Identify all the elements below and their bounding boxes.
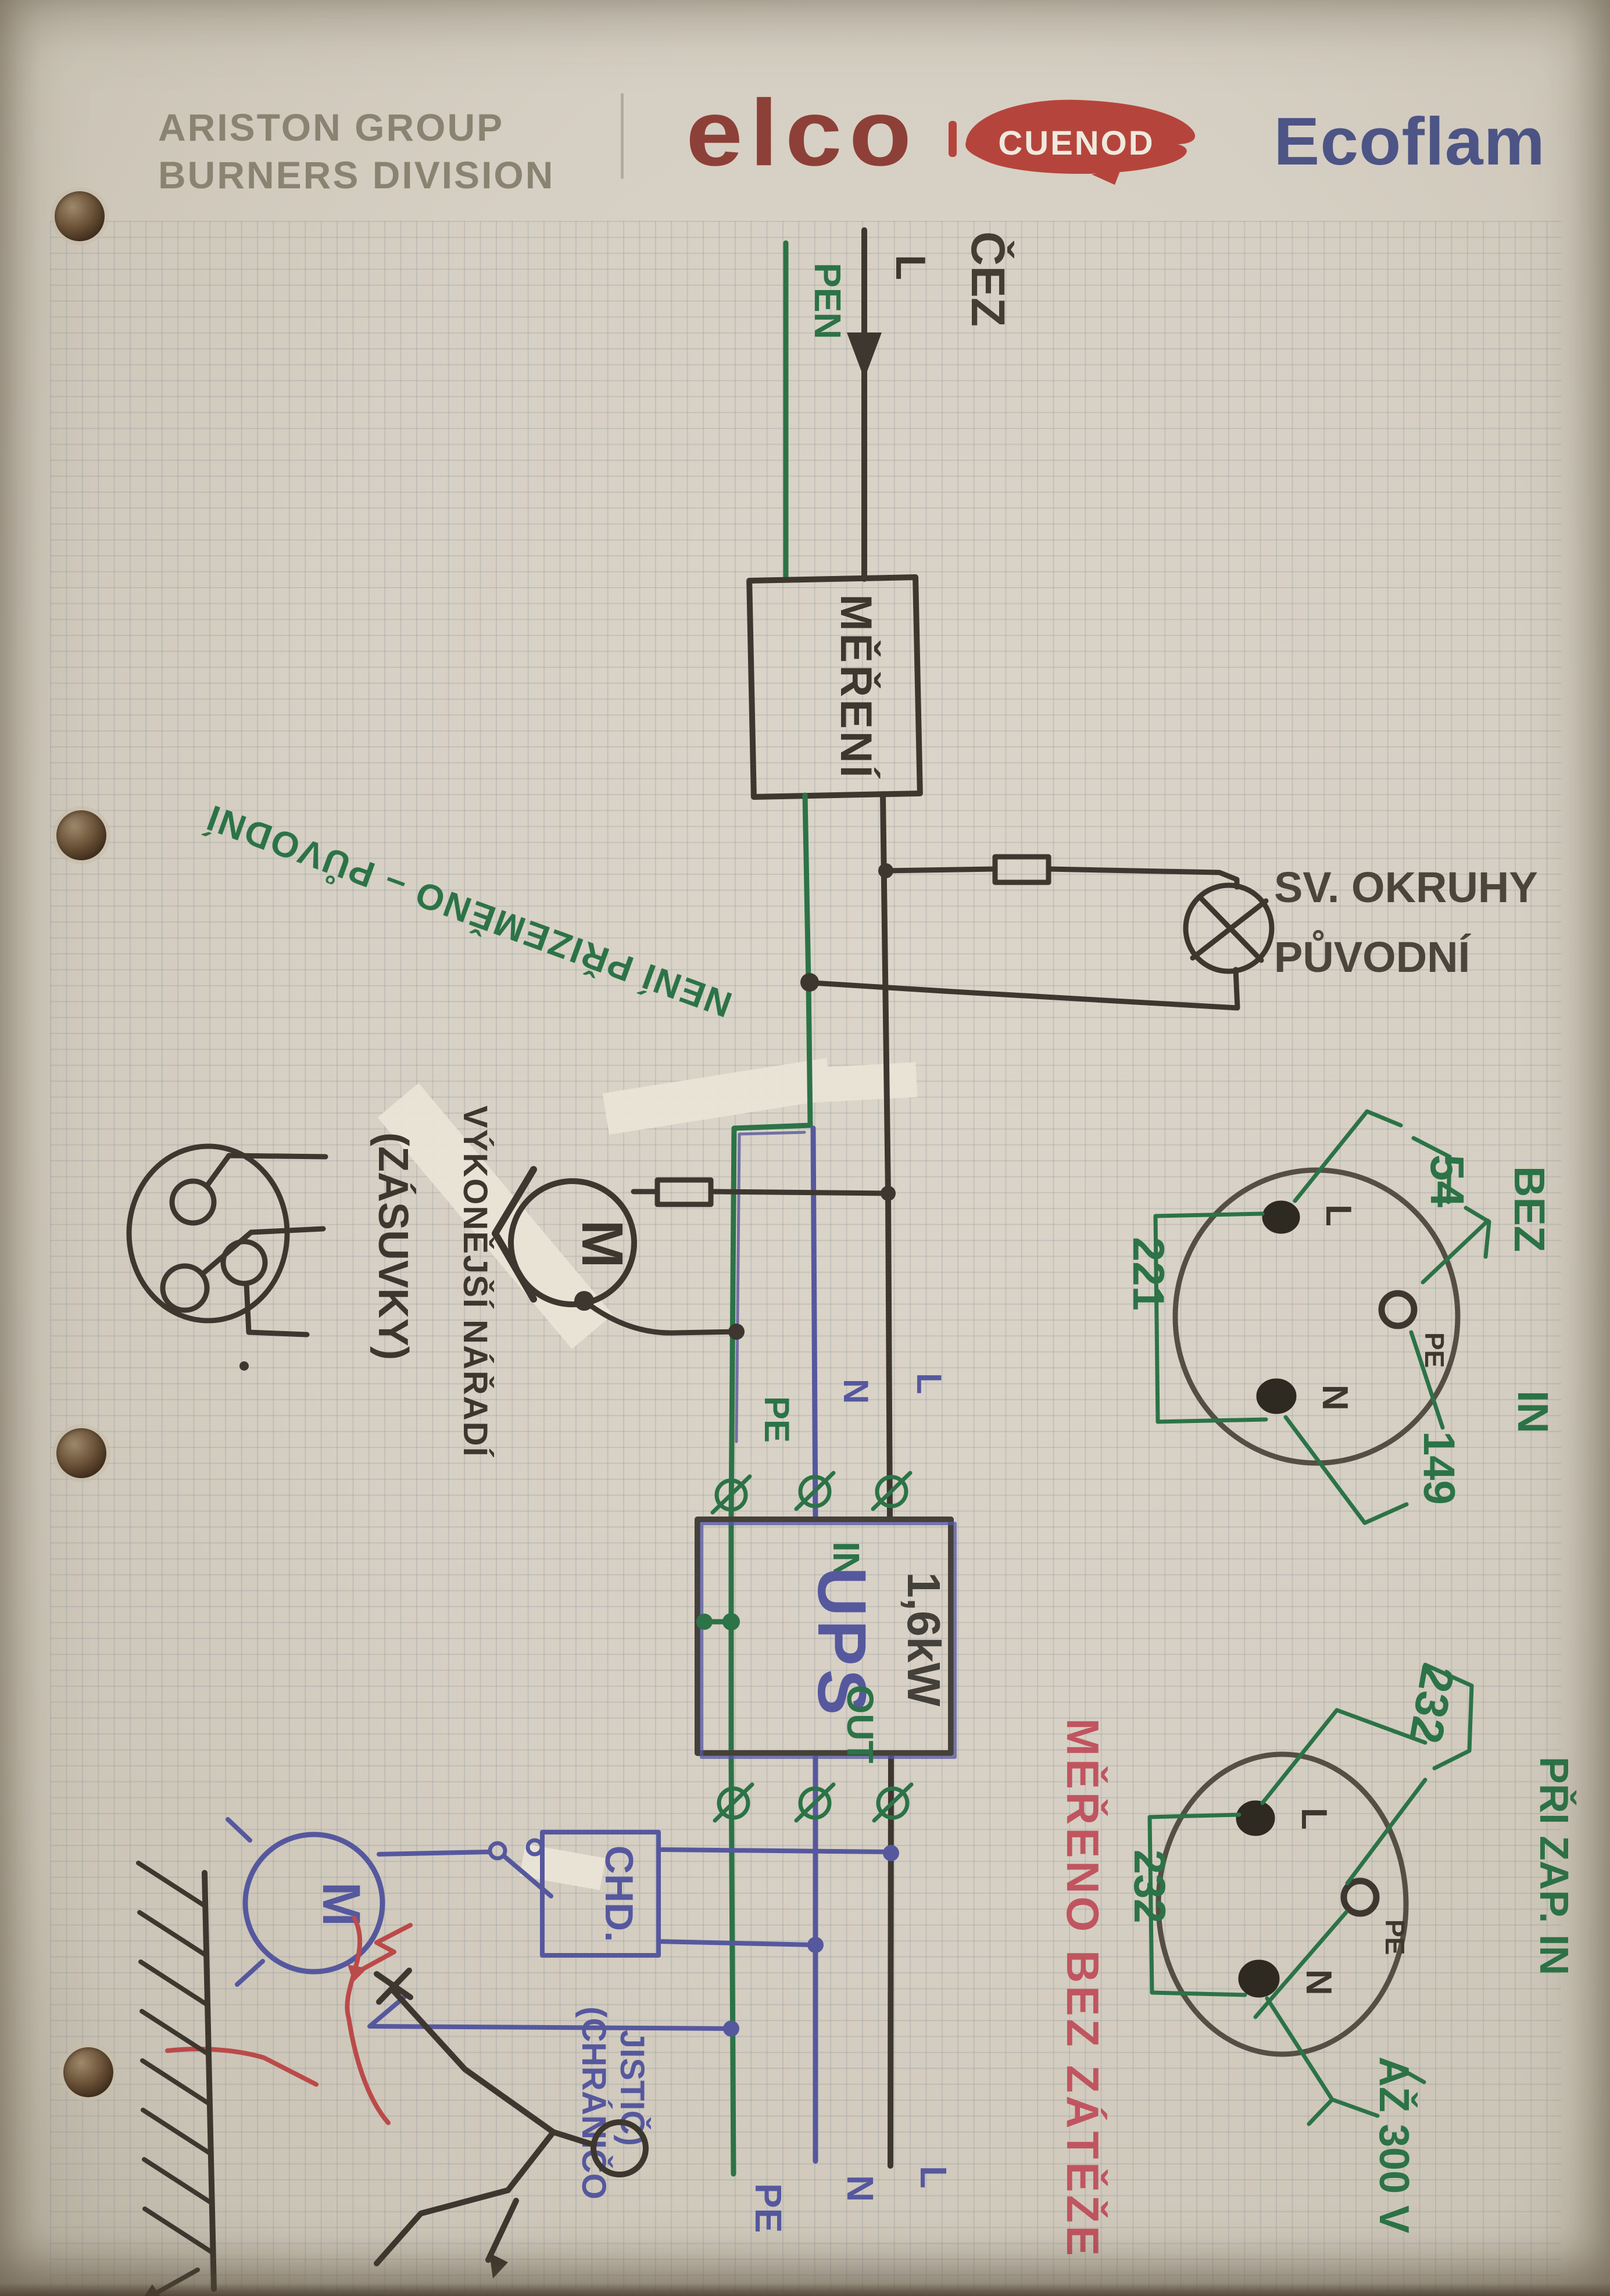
reading-note: PŘI ZAP. IN <box>1532 1757 1577 1975</box>
pen-label: PEN <box>807 263 849 339</box>
plug-wire <box>246 1283 307 1335</box>
ground-and-person <box>138 1863 646 2296</box>
notebook-page-photo: ARISTON GROUP BURNERS DIVISION elco CUEN… <box>0 0 1610 2296</box>
pin-label-pe: PE <box>1419 1332 1450 1368</box>
plug-pin <box>223 1242 265 1283</box>
pe-bond-dot <box>696 1614 713 1630</box>
bracket-line <box>1423 1208 1489 1282</box>
shock-ground-path <box>167 2049 316 2084</box>
socket-loaded: L N PE 232 232 PŘI ZAP. IN AŽ 300 V <box>1125 1662 1577 2233</box>
fuse-icon <box>995 857 1049 882</box>
note-bez: BEZ <box>1505 1166 1554 1252</box>
reading-max: AŽ 300 V <box>1371 2057 1418 2233</box>
junction-dot <box>723 2020 739 2037</box>
drill-label-line2: (ZÁSUVKY) <box>370 1132 416 1360</box>
socket-pin-l <box>1236 1801 1275 1836</box>
out-label-n: N <box>839 2175 881 2202</box>
ground-line <box>205 1873 214 2289</box>
plug-sketch <box>129 1146 325 1371</box>
photo-bottom-shadow <box>0 2283 1610 2296</box>
reading-l-pe: 54 <box>1421 1154 1473 1208</box>
lamp-feed-wire <box>1049 869 1237 887</box>
motor-label: M <box>570 1219 635 1268</box>
motor-feed-wire <box>711 1192 888 1193</box>
person-hands <box>377 1970 410 2002</box>
socket-pin-n <box>1239 1960 1279 1997</box>
rcd-n-wire <box>659 1941 815 1945</box>
main-wires <box>728 795 896 2174</box>
lamp-feed-wire <box>886 869 995 871</box>
lamp-branch: SV. OKRUHY PŮVODNÍ <box>814 857 1538 1008</box>
lamp-icon-cross <box>1193 897 1266 960</box>
pin-label-pe: PE <box>1380 1919 1410 1955</box>
bracket-line <box>1347 1780 1425 1883</box>
person-leg <box>377 2190 508 2263</box>
socket-pin-pe <box>1382 1293 1414 1326</box>
meter-box-label: MĚŘENÍ <box>831 594 881 780</box>
fuse-icon <box>657 1180 711 1204</box>
rcd-motor-label: M <box>312 1882 371 1927</box>
note-in: IN <box>1509 1390 1557 1433</box>
lamp-title-line2: PŮVODNÍ <box>1274 930 1472 981</box>
measured-no-load-note: MĚŘENO BEZ ZÁTĚŽE <box>1057 1718 1108 2259</box>
not-grounded-note: NENÍ PŘIZEMĚNO – PŮVODNÍ <box>200 796 738 1027</box>
socket-face <box>1158 1754 1406 2054</box>
source-label: ČEZ <box>961 231 1014 327</box>
socket-pin-l <box>1262 1201 1300 1233</box>
wire-label-l: L <box>910 1373 949 1394</box>
flow-arrow-icon <box>847 332 882 379</box>
motor-return-wire <box>584 1301 736 1333</box>
person-leg-arrow-line <box>488 2201 516 2260</box>
person-arm <box>393 1990 553 2132</box>
pe-bond-dot <box>722 1613 740 1630</box>
output-wire-labels: PE N L <box>747 2166 954 2233</box>
drill-label-line1: VÝKONĚJŠÍ NÁŘADÍ <box>456 1106 494 1458</box>
reading-n-pe: 149 <box>1414 1431 1464 1505</box>
socket-pin-n <box>1257 1379 1296 1414</box>
reading-left: 232 <box>1125 1850 1174 1923</box>
ups-power: 1,6kW <box>898 1572 950 1707</box>
wire-label-pe: PE <box>757 1396 796 1443</box>
out-label-l: L <box>913 2166 954 2188</box>
wire-label-n: N <box>836 1379 875 1404</box>
pin-label-l: L <box>1294 1808 1334 1830</box>
junction-dot <box>807 1937 824 1953</box>
lamp-title-line1: SV. OKRUHY <box>1274 863 1538 911</box>
rcd-box-label: CHD. <box>597 1846 641 1942</box>
switch-wire <box>379 1852 489 1854</box>
pin-label-l: L <box>1318 1204 1358 1226</box>
pin-label-n: N <box>1315 1385 1355 1411</box>
meter-box: MĚŘENÍ <box>749 577 920 797</box>
leg-arrowhead-icon <box>489 2253 508 2279</box>
socket-pin-pe <box>1344 1881 1376 1914</box>
supply-feed: PEN L ČEZ <box>786 230 1014 579</box>
wiring-diagram: PEN L ČEZ MĚŘENÍ SV. OK <box>0 0 1610 2296</box>
n-overtrace-wire <box>736 1132 804 1442</box>
ups-out-label: OUT <box>839 1685 881 1763</box>
lamp-return-wire <box>814 970 1237 1008</box>
ground-hatching <box>138 1863 212 2252</box>
junction-dot <box>883 1845 899 1861</box>
rcd-l-wire <box>659 1850 892 1852</box>
bracket-line <box>1286 1417 1407 1523</box>
line-label: L <box>887 255 933 280</box>
socket-no-load: L N PE 54 221 149 BEZ IN <box>1124 1111 1557 1523</box>
pin-label-n: N <box>1298 1969 1339 1995</box>
reading-l-n: 221 <box>1124 1237 1173 1311</box>
reading-top: 232 <box>1400 1662 1464 1747</box>
out-label-pe: PE <box>747 2183 789 2233</box>
ink-dot <box>239 1361 249 1371</box>
